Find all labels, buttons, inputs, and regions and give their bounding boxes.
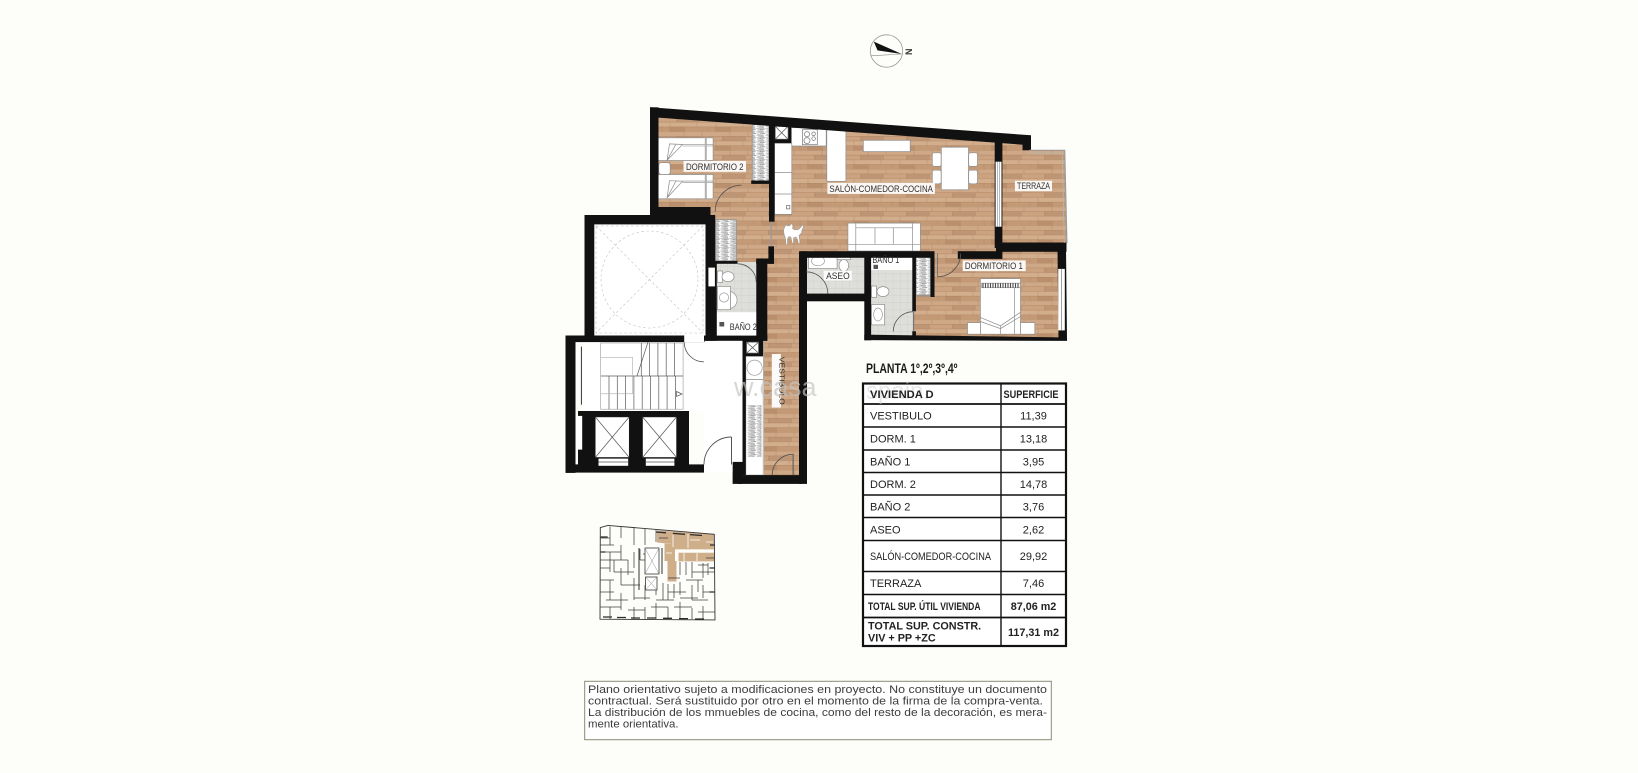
svg-text:SALÓN-COMEDOR-COCINA: SALÓN-COMEDOR-COCINA	[829, 184, 933, 195]
svg-text:VIVIENDA D: VIVIENDA D	[870, 389, 934, 401]
svg-text:w.casa: w.casa	[733, 372, 818, 402]
svg-text:DORM. 2: DORM. 2	[870, 479, 916, 491]
svg-text:2,62: 2,62	[1023, 525, 1044, 537]
svg-text:BAÑO 1: BAÑO 1	[870, 456, 910, 469]
svg-text:N: N	[904, 49, 914, 56]
svg-text:PLANTA 1º,2º,3º,4º: PLANTA 1º,2º,3º,4º	[866, 361, 958, 376]
svg-text:117,31 m2: 117,31 m2	[1008, 627, 1059, 639]
svg-text:11,39: 11,39	[1020, 411, 1047, 423]
svg-text:29,92: 29,92	[1020, 551, 1048, 563]
svg-text:13,18: 13,18	[1020, 434, 1048, 446]
svg-text:7,46: 7,46	[1023, 578, 1044, 590]
svg-text:VIV + PP +ZC: VIV + PP +ZC	[868, 633, 936, 645]
svg-text:TERRAZA: TERRAZA	[1017, 181, 1050, 192]
svg-text:DORMITORIO 1: DORMITORIO 1	[965, 261, 1023, 272]
svg-text:contractual. Será sustituido p: contractual. Será sustituido por otro en…	[588, 696, 1043, 708]
svg-text:La distribución de los mmueble: La distribución de los mmuebles de cocin…	[588, 707, 1047, 719]
svg-text:SUPERFICIE: SUPERFICIE	[1004, 389, 1059, 401]
svg-text:SALÓN-COMEDOR-COCINA: SALÓN-COMEDOR-COCINA	[870, 550, 992, 563]
svg-text:ASEO: ASEO	[870, 525, 901, 537]
svg-text:3,76: 3,76	[1023, 502, 1044, 514]
svg-text:TOTAL SUP. ÚTIL VIVIENDA: TOTAL SUP. ÚTIL VIVIENDA	[868, 600, 981, 613]
svg-text:BAÑO 2: BAÑO 2	[870, 501, 910, 514]
svg-text:87,06 m2: 87,06 m2	[1011, 601, 1057, 613]
svg-text:BAÑO 2: BAÑO 2	[730, 322, 757, 333]
svg-text:ASEO: ASEO	[826, 271, 850, 282]
svg-text:Plano orientativo sujeto a mod: Plano orientativo sujeto a modificacione…	[588, 684, 1047, 696]
svg-text:VESTIBULO: VESTIBULO	[870, 411, 932, 423]
svg-text:DORM. 1: DORM. 1	[870, 434, 916, 446]
svg-text:mente orientativa.: mente orientativa.	[588, 719, 679, 731]
svg-text:14,78: 14,78	[1020, 479, 1048, 491]
svg-text:TOTAL SUP. CONSTR.: TOTAL SUP. CONSTR.	[868, 621, 981, 633]
svg-text:DORMITORIO 2: DORMITORIO 2	[686, 162, 744, 173]
svg-text:TERRAZA: TERRAZA	[870, 578, 922, 590]
svg-text:BAÑO 1: BAÑO 1	[872, 255, 899, 266]
svg-text:3,95: 3,95	[1023, 457, 1044, 469]
